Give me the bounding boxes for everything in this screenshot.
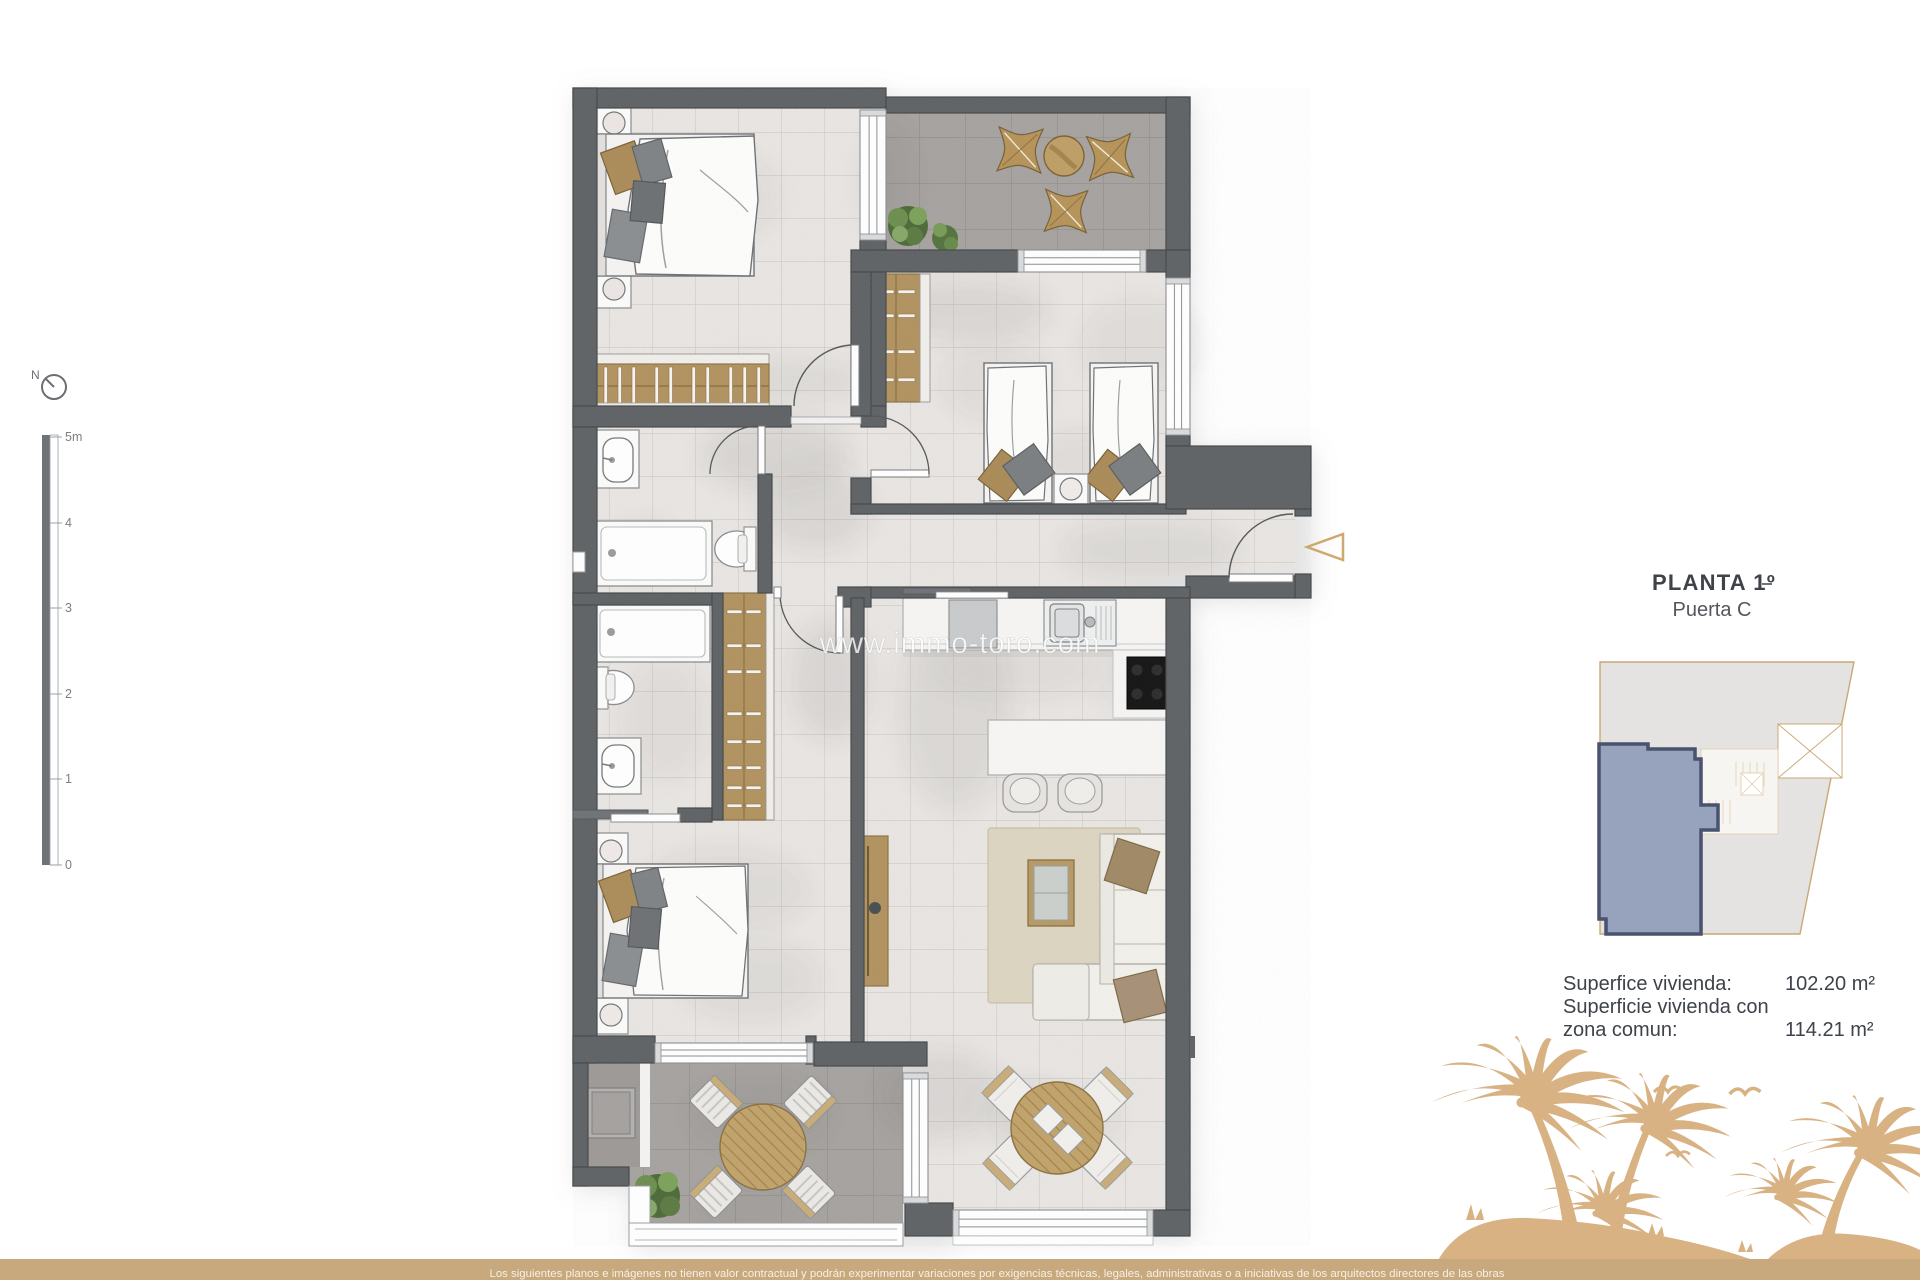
svg-text:102.20 m²: 102.20 m²: [1785, 973, 1875, 995]
svg-text:0: 0: [65, 858, 72, 872]
svg-text:www.immo-toro.com: www.immo-toro.com: [819, 627, 1101, 660]
svg-text:1: 1: [65, 772, 72, 786]
svg-text:2: 2: [65, 687, 72, 701]
svg-text:Puerta C: Puerta C: [1673, 599, 1752, 621]
svg-text:114.21 m²: 114.21 m²: [1785, 1019, 1874, 1041]
svg-text:5m: 5m: [65, 430, 82, 444]
svg-text:PLANTA 1º: PLANTA 1º: [1652, 570, 1776, 595]
svg-text:Superfice vivienda:: Superfice vivienda:: [1563, 973, 1732, 995]
svg-text:Superficie vivienda con: Superficie vivienda con: [1563, 996, 1769, 1018]
svg-text:3: 3: [65, 601, 72, 615]
svg-text:zona comun:: zona comun:: [1563, 1019, 1678, 1041]
svg-text:N: N: [31, 368, 40, 382]
svg-text:Los siguientes planos e imágen: Los siguientes planos e imágenes no tien…: [490, 1268, 1505, 1280]
svg-text:4: 4: [65, 516, 72, 530]
